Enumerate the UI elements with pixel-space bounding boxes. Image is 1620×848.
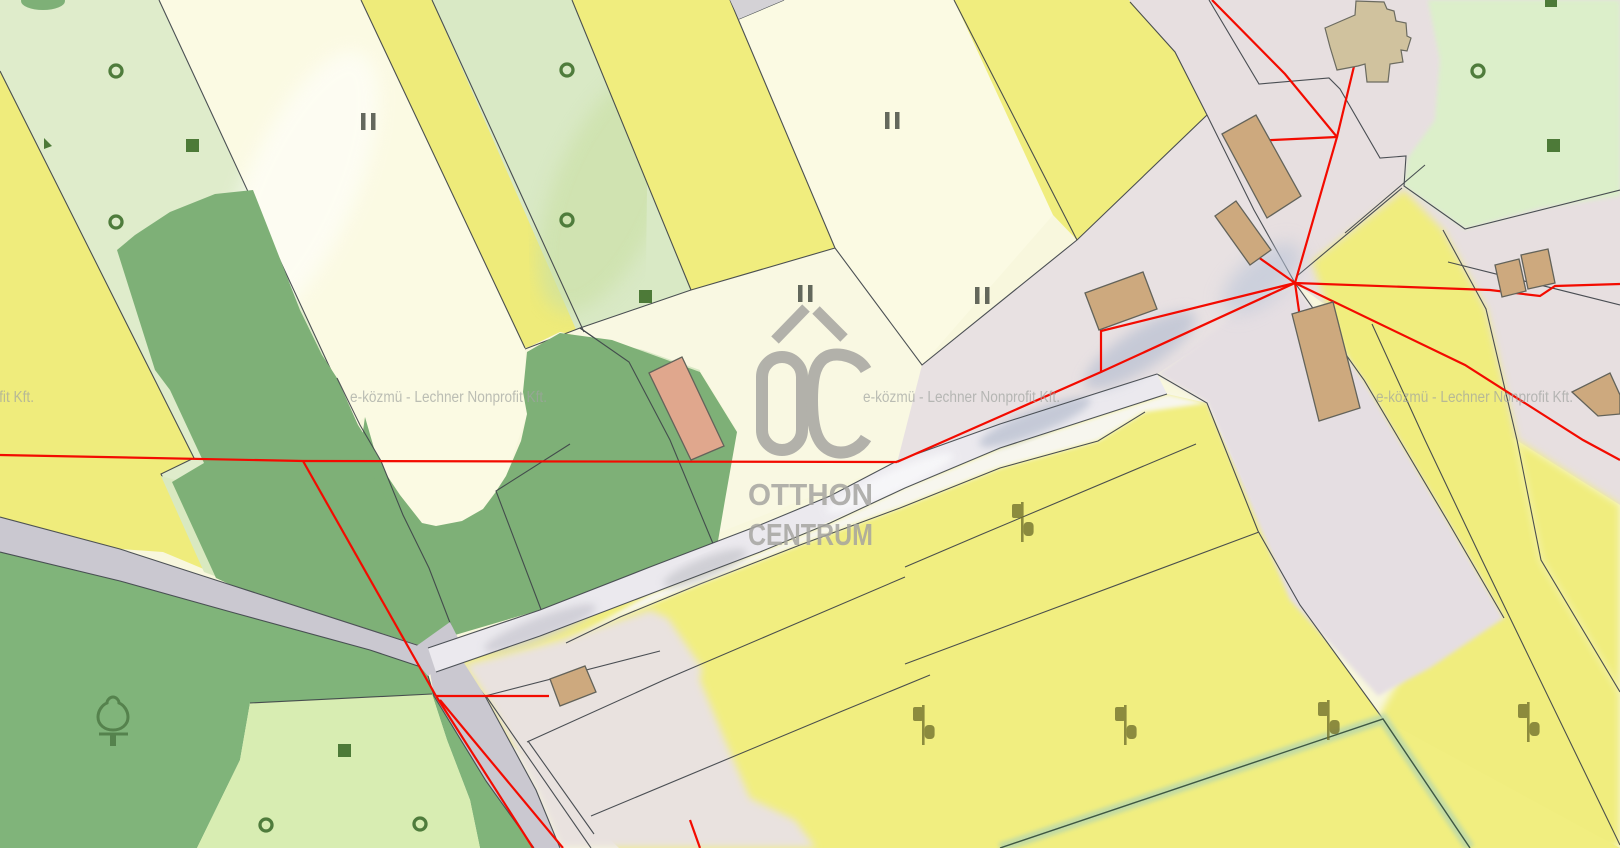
svg-text:CENTRUM: CENTRUM [748,517,873,552]
svg-text:e-közmü - Lechner Nonprofit Kf: e-közmü - Lechner Nonprofit Kft. [350,389,547,406]
svg-text:e-közmü - Lechner Nonprofit Kf: e-közmü - Lechner Nonprofit Kft. [863,389,1060,406]
svg-text:OTTHON: OTTHON [748,477,873,512]
svg-text:e-közmü - Lechner Nonprofit Kf: e-közmü - Lechner Nonprofit Kft. [0,389,34,406]
svg-text:e-közmü - Lechner Nonprofit Kf: e-közmü - Lechner Nonprofit Kft. [1376,389,1573,406]
